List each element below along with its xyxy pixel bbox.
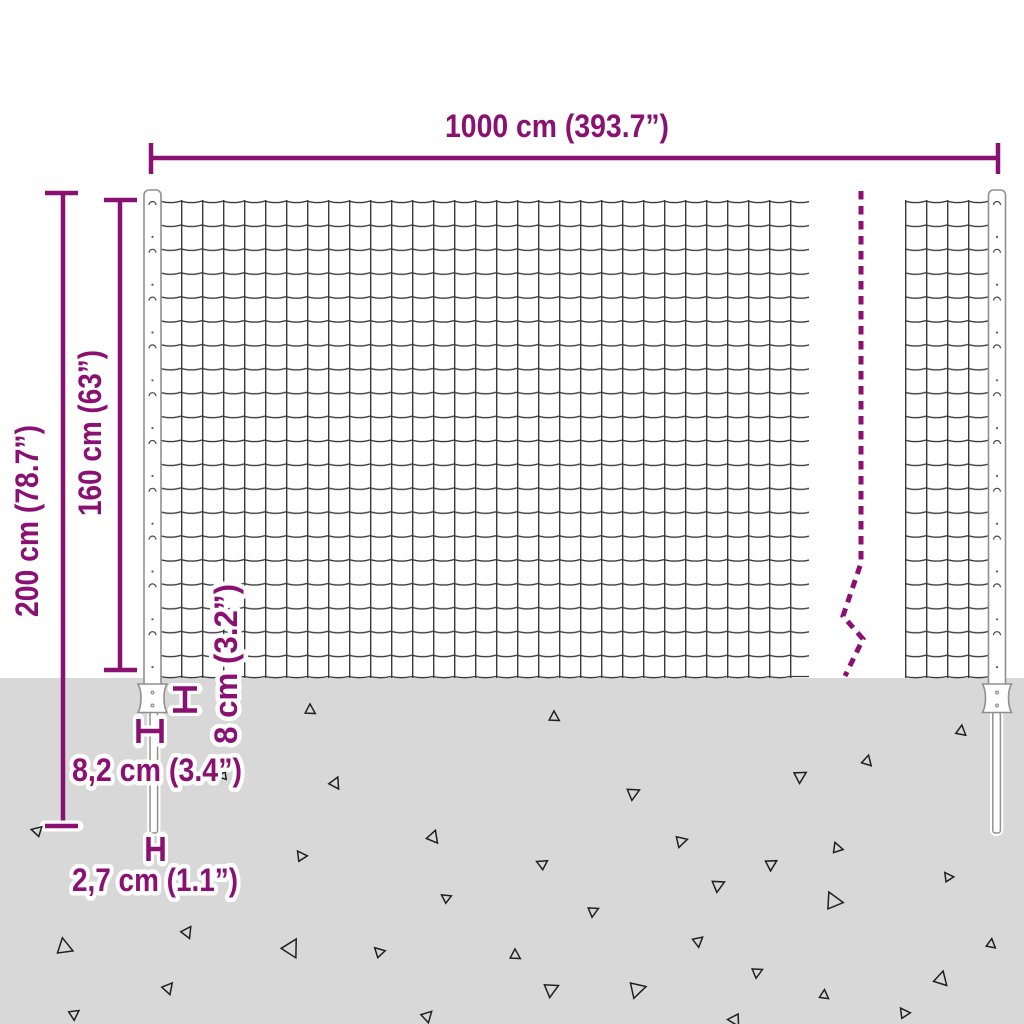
post-anchor-bracket-right (983, 684, 1012, 713)
dim-fence-height-line (104, 200, 137, 670)
post-anchor-bracket-left (138, 684, 167, 713)
dim-spike-width-label: 2,7 cm (1.1”) (72, 862, 238, 898)
ground-spike-right (993, 712, 1001, 833)
dim-depth-label: 8 cm (3.2”) (208, 584, 244, 744)
dim-width-label: 1000 cm (393.7”) (445, 108, 669, 144)
dim-total-height-label: 200 cm (78.7”) (9, 425, 45, 617)
fence-dimension-diagram: 1000 cm (393.7”) 200 cm (78.7”) 160 cm (… (0, 0, 1024, 1024)
break-line (843, 191, 863, 676)
dim-width-line (151, 143, 998, 174)
fence-mesh-panel-left (160, 200, 809, 678)
dim-fence-height-label: 160 cm (63”) (72, 350, 108, 516)
diagram-canvas: 1000 cm (393.7”) 200 cm (78.7”) 160 cm (… (0, 0, 1024, 1024)
dim-post-width-label: 8,2 cm (3.4”) (72, 752, 242, 788)
